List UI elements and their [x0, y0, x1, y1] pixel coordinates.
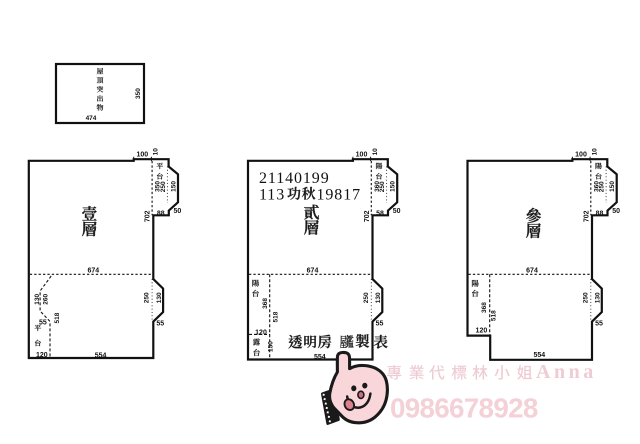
svg-text:250: 250 — [144, 292, 151, 303]
svg-text:100: 100 — [136, 151, 148, 158]
svg-text:674: 674 — [526, 268, 538, 275]
svg-text:554: 554 — [314, 354, 326, 361]
svg-text:674: 674 — [307, 268, 319, 275]
svg-text:19817: 19817 — [317, 186, 362, 203]
svg-text:518: 518 — [490, 310, 497, 321]
svg-text:10: 10 — [372, 148, 379, 156]
svg-text:10: 10 — [591, 148, 598, 156]
svg-text:50: 50 — [174, 208, 182, 215]
svg-text:100: 100 — [356, 151, 368, 158]
svg-text:150: 150 — [170, 181, 177, 192]
svg-text:250: 250 — [363, 292, 370, 303]
svg-text:130: 130 — [595, 292, 602, 303]
svg-text:130: 130 — [34, 293, 41, 304]
svg-text:55: 55 — [595, 321, 603, 328]
svg-text:250: 250 — [582, 292, 589, 303]
svg-text:88: 88 — [596, 211, 604, 218]
svg-text:150: 150 — [609, 181, 616, 192]
svg-text:368: 368 — [481, 302, 488, 313]
svg-text:554: 554 — [533, 352, 545, 359]
svg-text:0986678928: 0986678928 — [390, 393, 538, 424]
svg-text:518: 518 — [272, 311, 279, 322]
svg-text:55: 55 — [156, 321, 164, 328]
svg-text:150: 150 — [390, 181, 397, 192]
svg-text:518: 518 — [54, 312, 61, 323]
svg-text:88: 88 — [157, 211, 165, 218]
svg-text:50: 50 — [612, 208, 620, 215]
svg-text:58: 58 — [376, 211, 384, 218]
svg-text:702: 702 — [583, 210, 590, 222]
svg-text:Anna: Anna — [536, 361, 597, 383]
svg-text:120: 120 — [36, 352, 48, 359]
svg-text:130: 130 — [156, 292, 163, 303]
svg-text:120: 120 — [255, 330, 267, 337]
svg-text:674: 674 — [87, 268, 99, 275]
svg-text:350: 350 — [135, 88, 142, 99]
svg-text:21140199: 21140199 — [259, 170, 330, 187]
svg-text:250: 250 — [599, 181, 606, 192]
svg-text:702: 702 — [364, 210, 371, 222]
svg-text:368: 368 — [262, 298, 269, 309]
svg-text:250: 250 — [160, 181, 167, 192]
svg-text:120: 120 — [476, 327, 488, 334]
svg-text:150: 150 — [267, 341, 274, 352]
svg-text:474: 474 — [86, 115, 97, 122]
svg-text:55: 55 — [376, 321, 384, 328]
svg-text:260: 260 — [43, 293, 50, 304]
svg-text:554: 554 — [95, 353, 107, 360]
svg-text:130: 130 — [375, 292, 382, 303]
svg-text:250: 250 — [379, 181, 386, 192]
svg-text:100: 100 — [575, 151, 587, 158]
svg-text:702: 702 — [145, 210, 152, 222]
svg-text:55: 55 — [39, 320, 47, 327]
svg-text:113: 113 — [259, 186, 285, 203]
svg-text:10: 10 — [153, 148, 160, 156]
svg-text:50: 50 — [393, 208, 401, 215]
